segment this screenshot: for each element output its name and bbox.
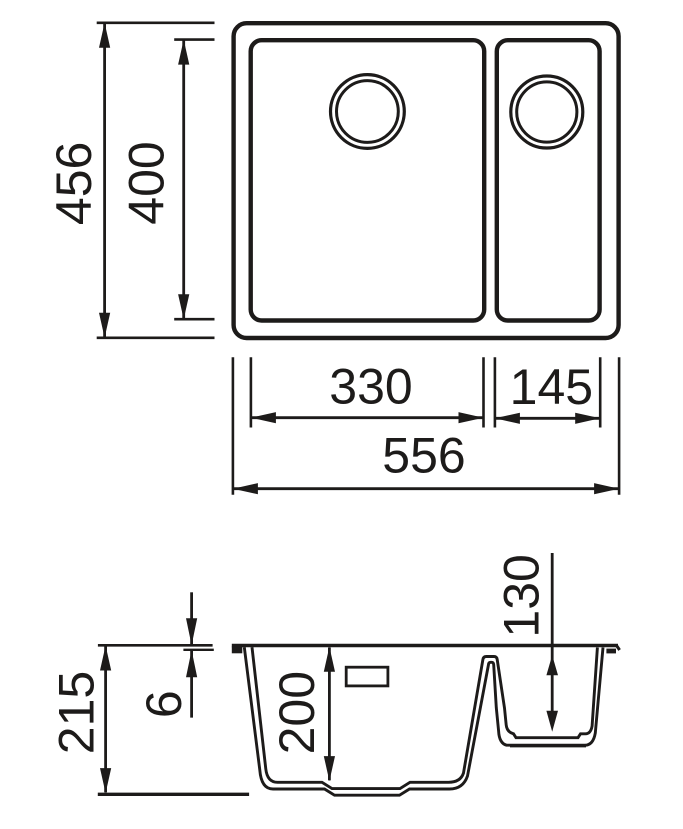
- svg-text:200: 200: [269, 671, 325, 754]
- svg-text:215: 215: [48, 671, 104, 754]
- svg-text:330: 330: [329, 359, 412, 415]
- svg-text:145: 145: [510, 359, 593, 415]
- svg-text:556: 556: [382, 427, 465, 483]
- svg-text:400: 400: [118, 141, 174, 224]
- svg-text:6: 6: [136, 690, 192, 718]
- svg-text:456: 456: [46, 142, 102, 225]
- svg-text:130: 130: [493, 554, 549, 637]
